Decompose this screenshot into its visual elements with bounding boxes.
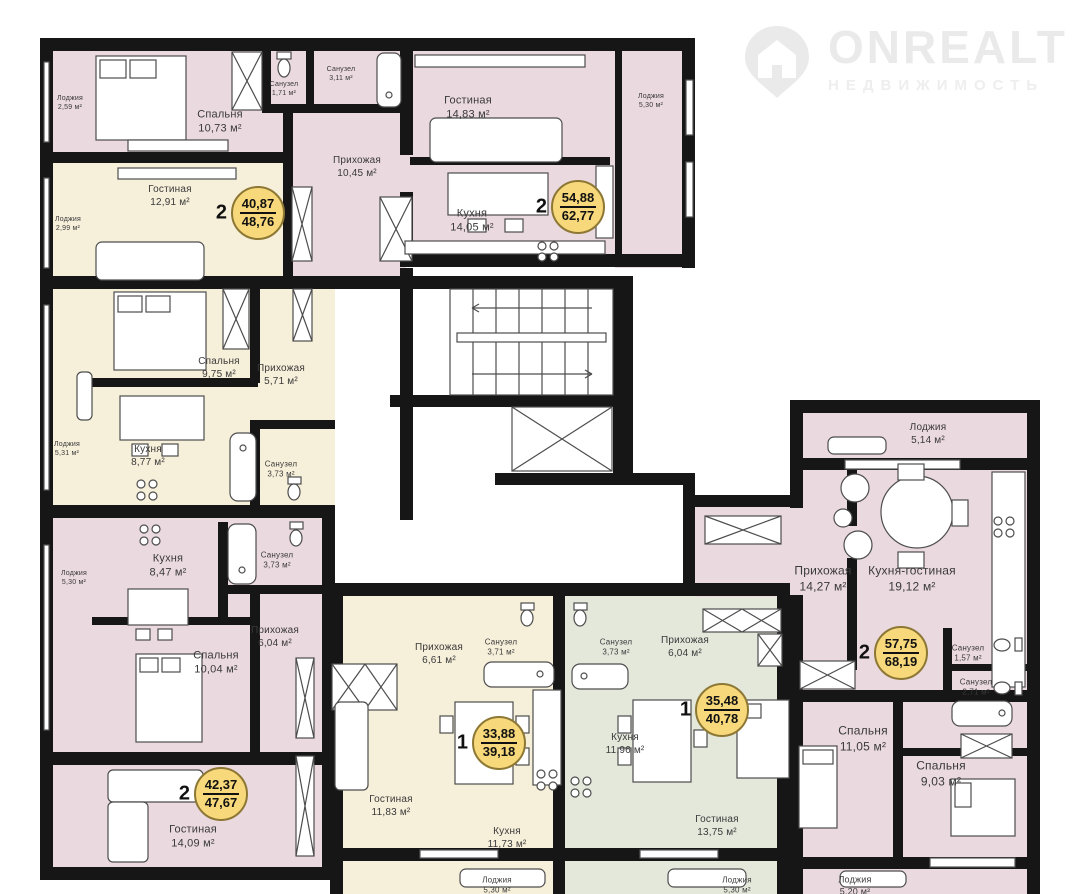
room-label: Санузел1,57 м² — [952, 644, 985, 665]
room-label: Лоджия5,30 м² — [61, 569, 87, 587]
onrealt-logo: ONREALT НЕДВИЖИМОСТЬ — [742, 24, 1068, 100]
unit-room-count: 2 — [536, 196, 547, 219]
room-label: Кухня8,47 м² — [149, 552, 186, 581]
room-label: Санузел3,73 м² — [600, 638, 633, 659]
room-label: Спальня10,73 м² — [197, 108, 243, 137]
room-label: Спальня10,04 м² — [193, 649, 239, 678]
room-label: Прихожая6,61 м² — [415, 641, 463, 667]
room-label: Прихожая14,27 м² — [794, 563, 851, 594]
room-label: Санузел3,73 м² — [261, 551, 294, 572]
unit-room-count: 2 — [859, 642, 870, 665]
unit-area-badge: 42,3747,67 — [194, 767, 248, 821]
unit-room-count: 1 — [457, 732, 468, 755]
room-label: Санузел3,71 м² — [485, 638, 518, 659]
room-label: Гостиная13,75 м² — [695, 813, 739, 839]
room-label: Санузел3,73 м² — [265, 460, 298, 481]
room-label: Кухня14,05 м² — [450, 207, 493, 236]
room-label: Лоджия2,99 м² — [55, 215, 81, 233]
room-label: Прихожая6,04 м² — [251, 624, 299, 650]
room-label: Прихожая5,71 м² — [257, 362, 305, 388]
room-label: Лоджия5,14 м² — [910, 421, 947, 447]
room-label: Прихожая10,45 м² — [333, 154, 381, 180]
room-label: Санузел2,71 м² — [960, 678, 993, 699]
room-label: Спальня9,75 м² — [198, 355, 240, 381]
logo-name: ONREALT — [828, 24, 1068, 70]
logo-subtitle: НЕДВИЖИМОСТЬ — [828, 77, 1068, 94]
unit-area-badge: 33,8839,18 — [472, 716, 526, 770]
unit-area-badge: 35,4840,78 — [695, 683, 749, 737]
room-label: Лоджия2,59 м² — [57, 94, 83, 112]
room-label: Санузел1,71 м² — [270, 80, 299, 98]
room-label: Гостиная14,09 м² — [169, 823, 217, 852]
room-label: Кухня11,73 м² — [488, 825, 527, 851]
floor-plan: Лоджия2,59 м² Спальня10,73 м² Санузел1,7… — [0, 0, 1080, 894]
room-label: Спальня9,03 м² — [916, 758, 966, 789]
room-label: Лоджия5,30 м² — [722, 876, 752, 894]
house-pin-icon — [742, 24, 812, 100]
unit-area-badge: 40,8748,76 — [231, 186, 285, 240]
unit-area-badge: 57,7568,19 — [874, 626, 928, 680]
room-label: Санузел3,11 м² — [327, 65, 356, 83]
unit-room-count: 2 — [216, 202, 227, 225]
unit-room-count: 1 — [680, 699, 691, 722]
room-label: Кухня-гостиная19,12 м² — [868, 563, 956, 594]
room-label: Лоджия5,31 м² — [54, 440, 80, 458]
room-label: Кухня11,96 м² — [606, 731, 645, 757]
room-label: Гостиная12,91 м² — [148, 183, 192, 209]
room-label: Лоджия5,30 м² — [482, 876, 512, 894]
unit-room-count: 2 — [179, 783, 190, 806]
room-label: Прихожая6,04 м² — [661, 634, 709, 660]
unit-area-badge: 54,8862,77 — [551, 180, 605, 234]
room-label: Гостиная11,83 м² — [369, 793, 413, 819]
room-label: Лоджия5,30 м² — [638, 92, 664, 110]
room-label: Гостиная14,83 м² — [444, 94, 492, 123]
logo-text: ONREALT НЕДВИЖИМОСТЬ — [828, 24, 1068, 94]
room-label: Спальня11,05 м² — [838, 723, 888, 754]
room-label: Лоджия5,20 м² — [838, 874, 871, 894]
room-label: Кухня8,77 м² — [131, 443, 165, 469]
